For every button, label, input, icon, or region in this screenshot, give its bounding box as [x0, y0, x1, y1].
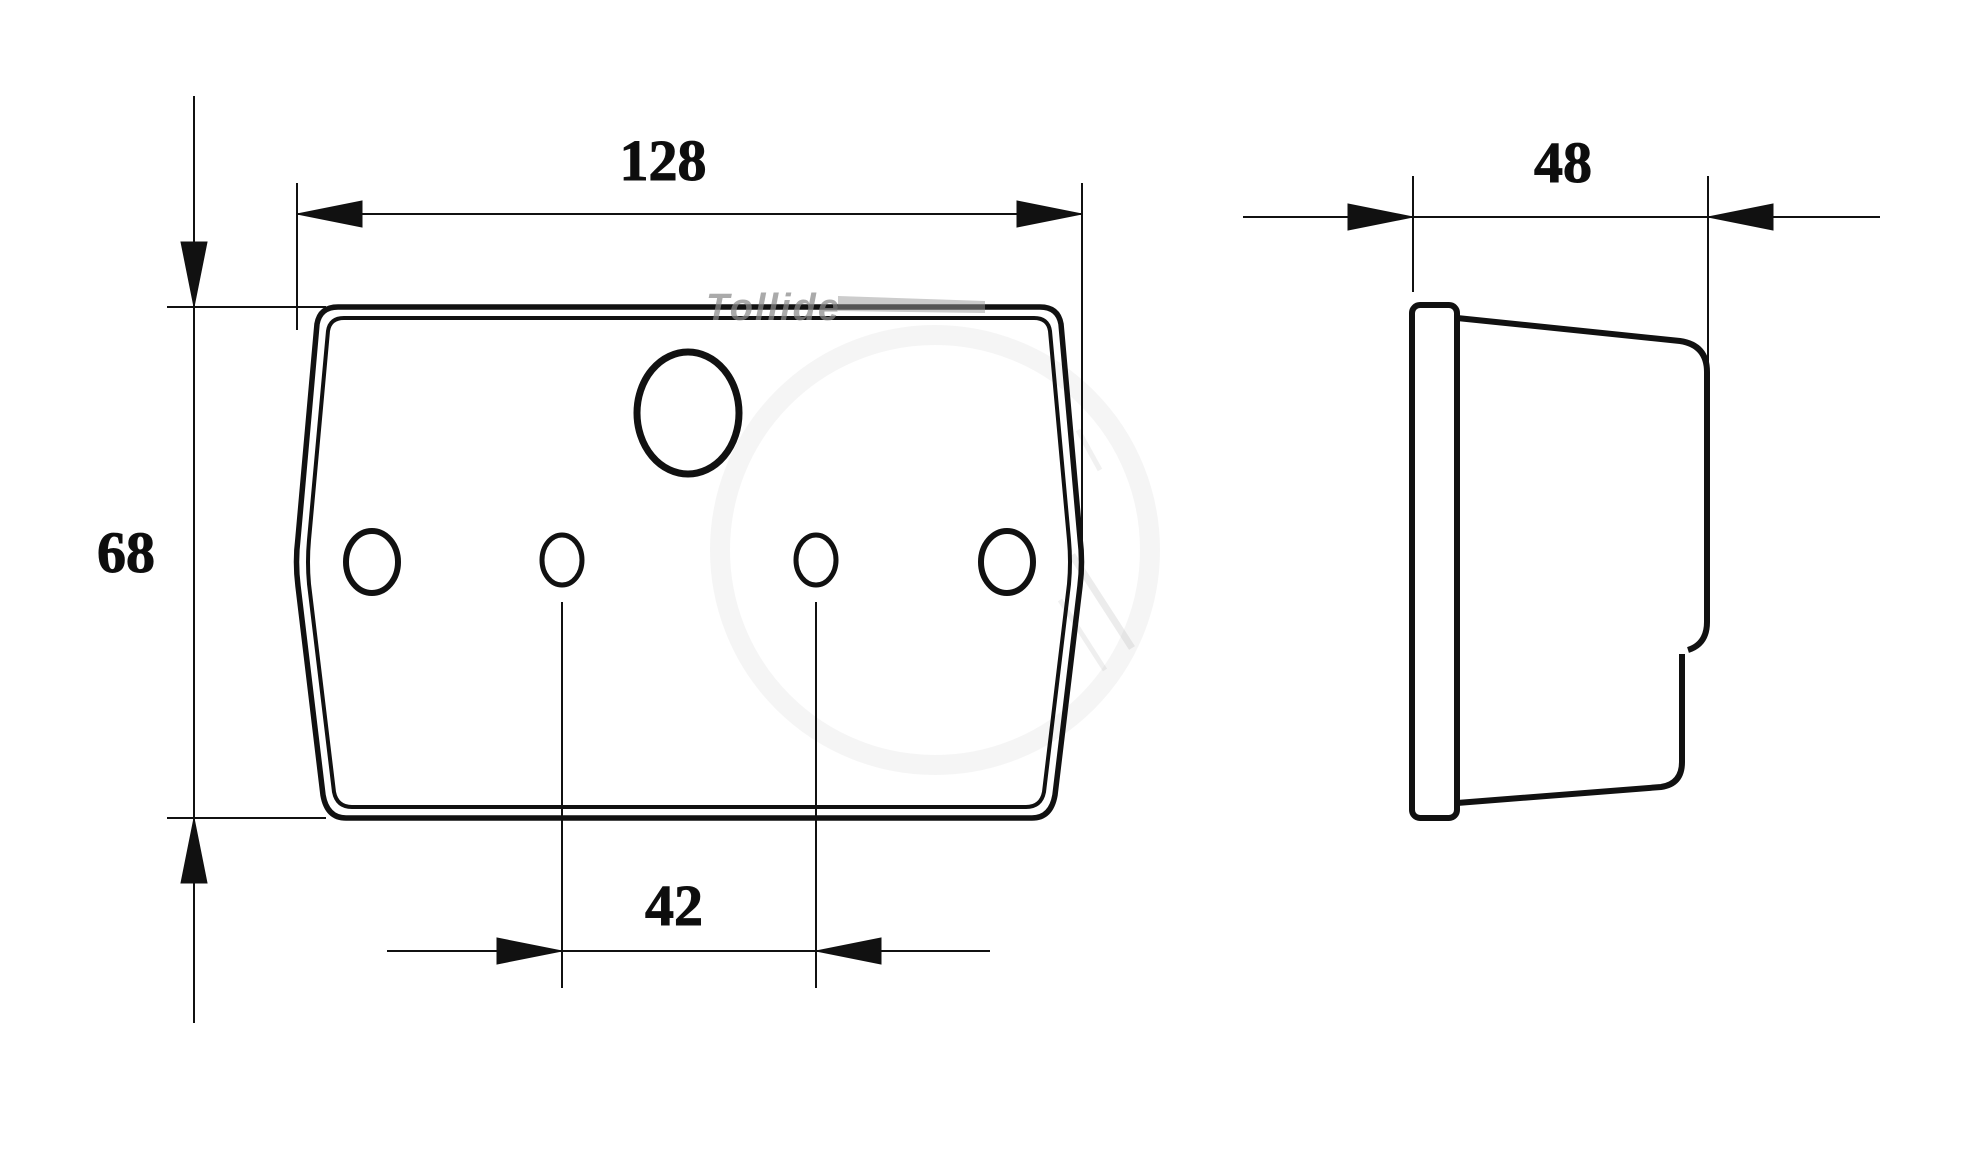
arrow-left-icon [816, 938, 881, 964]
front-outer-outline [297, 307, 1082, 818]
mounting-hole-left [346, 531, 398, 593]
mounting-hole-right [981, 531, 1033, 593]
watermark-swoosh [838, 296, 985, 313]
front-inner-outline [308, 318, 1070, 807]
fixing-hole-left [542, 535, 582, 585]
dim-48-label: 48 [1534, 130, 1592, 195]
dim-128-label: 128 [620, 128, 707, 193]
dimension-hole-spacing: 42 [387, 873, 990, 964]
lamp-technical-drawing: 128 68 42 48 Tollide [0, 0, 1978, 1158]
side-view [1412, 305, 1707, 818]
dim-68-label: 68 [97, 520, 155, 585]
arrow-down-icon [181, 242, 207, 307]
watermark-brand: Tollide [706, 287, 985, 329]
arrow-left-icon [297, 201, 362, 227]
side-body-outline [1457, 318, 1707, 803]
arrow-right-icon [497, 938, 562, 964]
dimension-front-height: 68 [97, 96, 326, 1023]
technical-drawing-page: 128 68 42 48 Tollide [0, 0, 1978, 1158]
arrow-left-icon [1708, 204, 1773, 230]
arrow-up-icon [181, 818, 207, 883]
dim-42-label: 42 [645, 873, 703, 938]
watermark-circle [720, 335, 1150, 765]
top-lens-circle [637, 352, 739, 474]
arrow-right-icon [1017, 201, 1082, 227]
arrow-right-icon [1348, 204, 1413, 230]
watermark-text: Tollide [706, 287, 841, 329]
fixing-hole-right [796, 535, 836, 585]
side-flange [1412, 305, 1457, 818]
